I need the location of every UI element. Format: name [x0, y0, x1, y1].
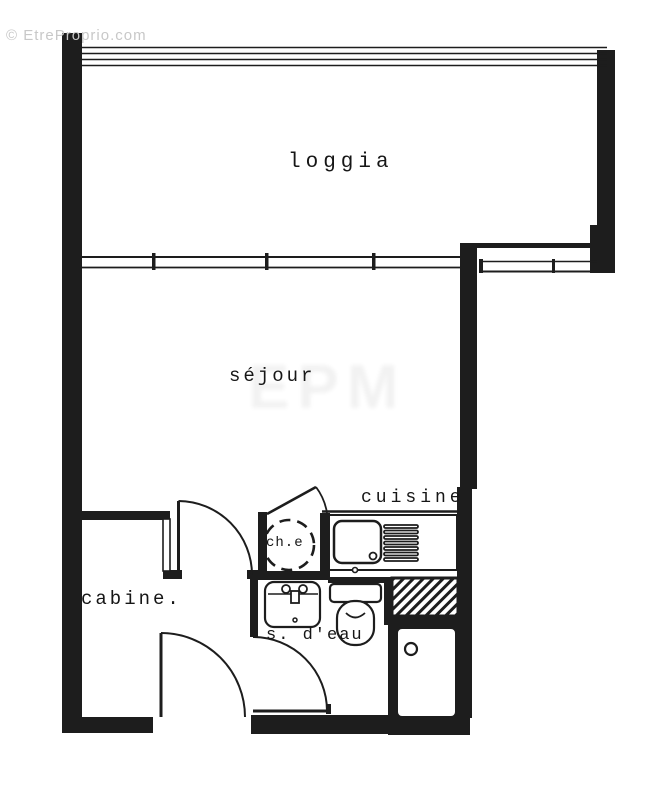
bottom-wall-left [62, 717, 153, 733]
bathroom-door [253, 637, 331, 714]
right-window-band [476, 243, 597, 273]
kitchen-counter [322, 512, 457, 573]
room-label-sejour: séjour [229, 365, 315, 387]
left-wall [62, 33, 82, 732]
bathroom-top-wall [250, 571, 330, 580]
floor-plan: © EtreProprio.com EPM [0, 0, 654, 800]
right-loggia-wall [597, 50, 615, 230]
room-label-cuisine: cuisine [361, 488, 465, 508]
cabine-partition [163, 519, 170, 571]
sejour-right-wall [460, 243, 477, 489]
loggia-window-band [82, 253, 461, 270]
cooktop-grill [384, 525, 418, 561]
closet-door [267, 487, 327, 514]
watermark-text: © EtreProprio.com [6, 27, 147, 44]
right-corner-block [590, 225, 615, 273]
room-label-loggia: loggia [288, 151, 394, 174]
room-label-water-heater: ch.e [266, 535, 304, 551]
sejour-door [179, 501, 253, 575]
cabine-top-wall [62, 511, 170, 520]
room-label-cabine: cabine. [81, 588, 182, 610]
washbasin [265, 582, 320, 627]
bathroom-left-wall [250, 571, 258, 637]
room-label-shower-room: s. d'eau [266, 626, 364, 645]
toilet-top-bar [328, 577, 390, 583]
duct-hatch [392, 578, 458, 616]
ghost-watermark: EPM [248, 352, 406, 423]
entrance-door [161, 633, 245, 717]
shower-tray [388, 620, 470, 735]
loggia-railing [82, 48, 607, 66]
